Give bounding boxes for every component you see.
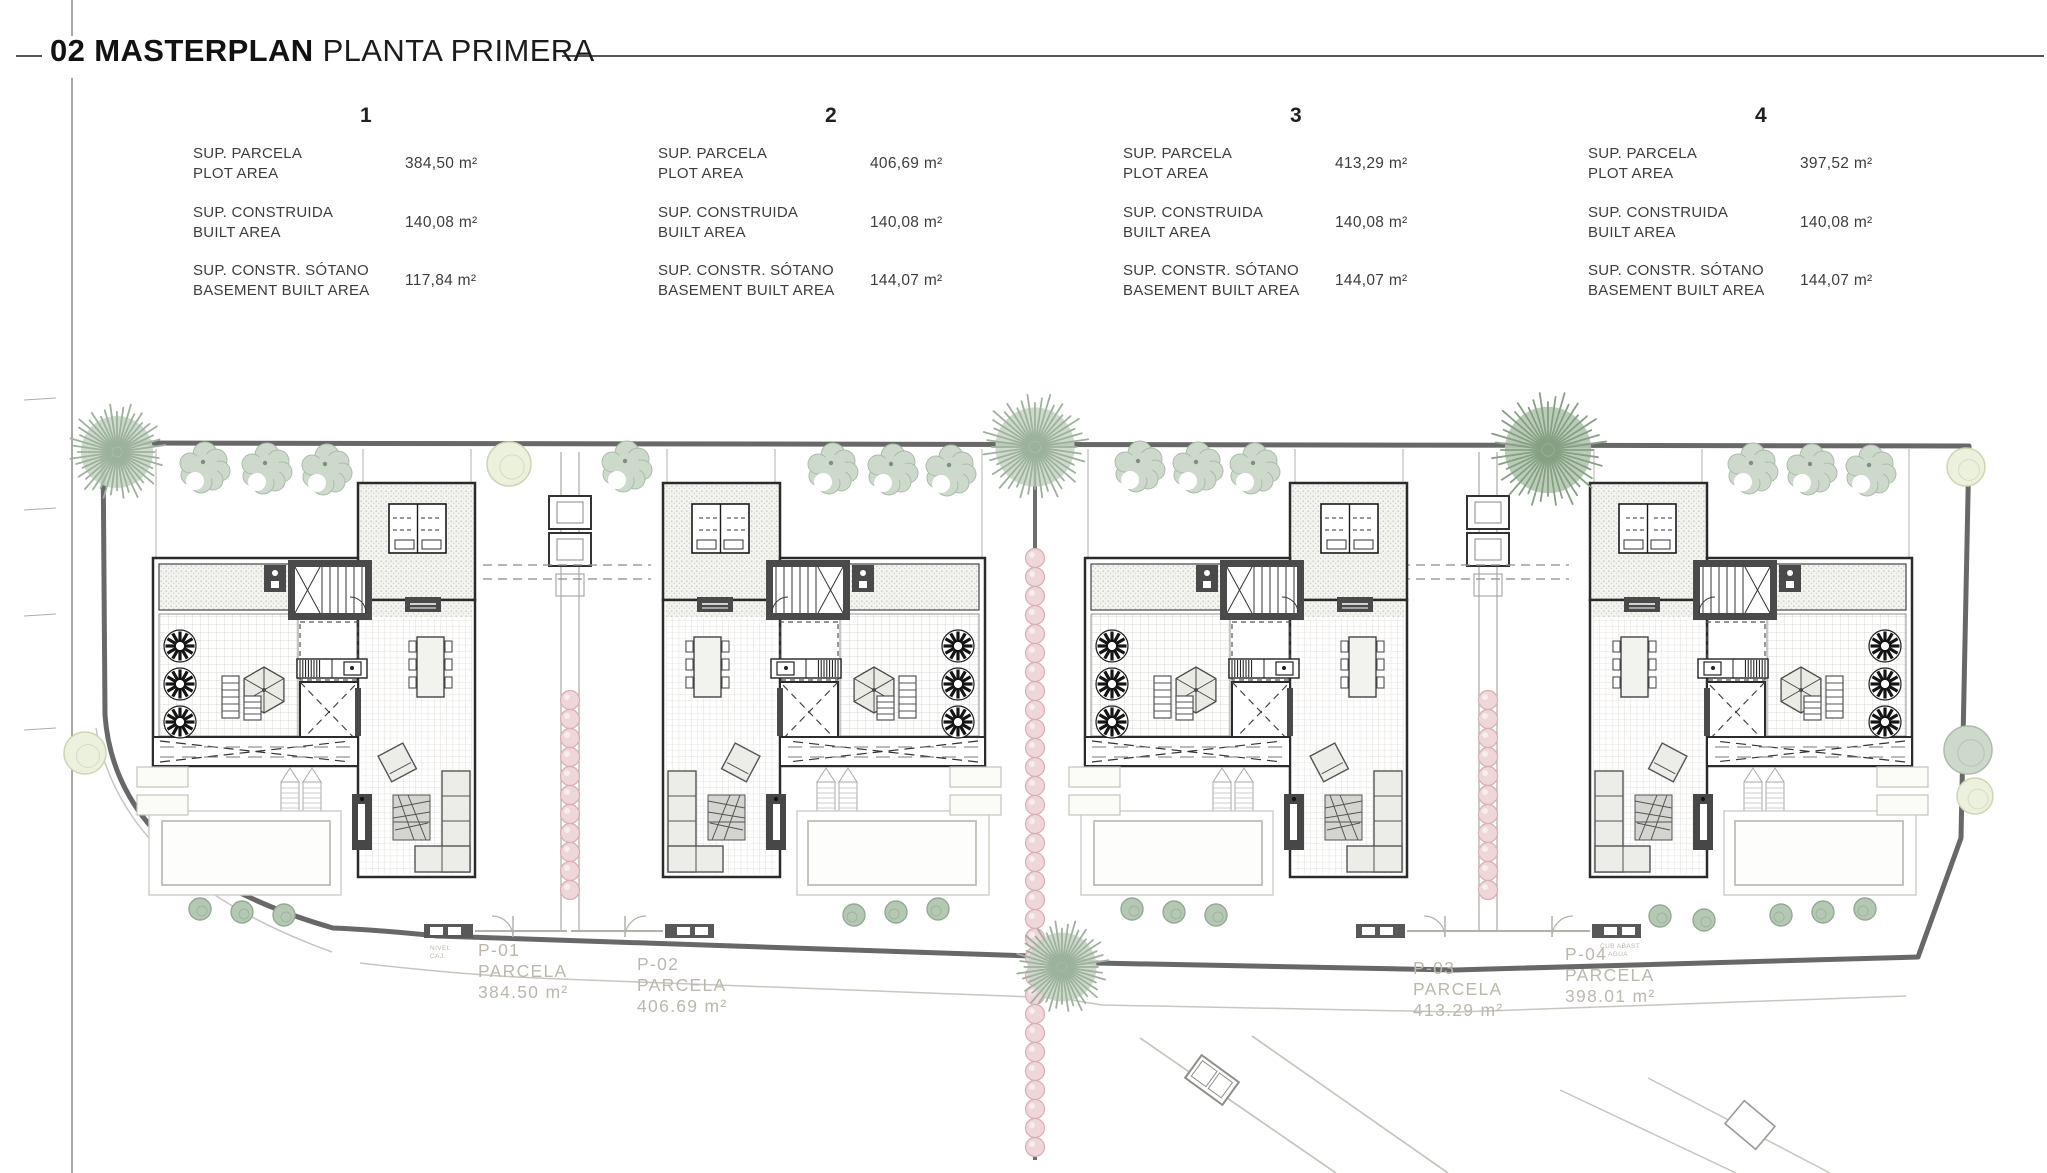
parcel-code: P-02 (637, 954, 679, 974)
unit-number: 4 (1755, 104, 1767, 128)
round-tree-icon (1957, 778, 1993, 814)
shrub-tree-icon (302, 444, 352, 495)
stat-label-en: BASEMENT BUILT AREA (658, 281, 870, 301)
stat-label-en: PLOT AREA (658, 164, 870, 184)
stat-label-es: SUP. CONSTR. SÓTANO (1588, 261, 1800, 281)
stat-label-es: SUP. CONSTR. SÓTANO (1123, 261, 1335, 281)
unit-stats-3: 3 SUP. PARCELAPLOT AREA 413,29 m² SUP. C… (1060, 100, 1525, 330)
unit-number: 2 (825, 104, 837, 128)
shrub-tree-icon (1787, 444, 1837, 495)
svg-text:CAJ.: CAJ. (430, 953, 446, 960)
stat-label-es: SUP. CONSTRUIDA (193, 203, 405, 223)
stat-label-en: BUILT AREA (1123, 223, 1335, 243)
masterplan-sheet: 02 MASTERPLAN PLANTA PRIMERA 1 SUP. PARC… (0, 0, 2047, 1173)
stat-label-es: SUP. CONSTRUIDA (1588, 203, 1800, 223)
parcel-word: PARCELA (1413, 979, 1503, 999)
house-plan-1 (137, 449, 567, 938)
parcel-area: 398.01 m² (1565, 986, 1656, 1006)
stat-row: SUP. CONSTR. SÓTANOBASEMENT BUILT AREA 1… (1123, 261, 1521, 300)
stat-value: 140,08 m² (1800, 214, 1873, 232)
parcel-area: 413.29 m² (1413, 1000, 1504, 1020)
shrub-tree-icon (242, 443, 292, 494)
parcel-word: PARCELA (637, 975, 727, 995)
stat-label-es: SUP. CONSTRUIDA (658, 203, 870, 223)
stat-row: SUP. CONSTR. SÓTANOBASEMENT BUILT AREA 1… (193, 261, 591, 300)
stat-value: 384,50 m² (405, 155, 478, 173)
shrub-tree-icon (1846, 445, 1896, 496)
stat-label-en: PLOT AREA (1123, 164, 1335, 184)
stat-label-en: BASEMENT BUILT AREA (1588, 281, 1800, 301)
stat-value: 117,84 m² (405, 272, 476, 290)
utility-tiny-label-left: NIVEL CAJ. (430, 945, 451, 960)
stat-label-es: SUP. PARCELA (193, 144, 405, 164)
large-tree-icon (70, 404, 165, 497)
stat-label-es: SUP. CONSTRUIDA (1123, 203, 1335, 223)
round-tree-icon (1944, 726, 1992, 774)
stat-value: 144,07 m² (1800, 272, 1873, 290)
stat-row: SUP. PARCELAPLOT AREA 406,69 m² (658, 144, 1056, 183)
svg-text:NIVEL: NIVEL (430, 945, 451, 952)
page-title-rest: PLANTA PRIMERA (323, 33, 595, 68)
stat-label-en: PLOT AREA (193, 164, 405, 184)
unit-stats-4: 4 SUP. PARCELAPLOT AREA 397,52 m² SUP. C… (1525, 100, 1990, 330)
parcel-area: 406.69 m² (637, 996, 728, 1016)
unit-number: 1 (360, 104, 372, 128)
stat-value: 144,07 m² (870, 272, 943, 290)
house-plan-4 (1498, 449, 1928, 938)
unit-stats-2: 2 SUP. PARCELAPLOT AREA 406,69 m² SUP. C… (595, 100, 1060, 330)
stat-value: 140,08 m² (405, 214, 478, 232)
stat-value: 140,08 m² (1335, 214, 1408, 232)
stat-value: 144,07 m² (1335, 272, 1408, 290)
stat-label-en: BUILT AREA (658, 223, 870, 243)
shrub-tree-icon (1115, 441, 1165, 492)
stat-row: SUP. CONSTRUIDABUILT AREA 140,08 m² (1588, 203, 1986, 242)
svg-text:AGUA: AGUA (1608, 951, 1628, 958)
shrub-tree-icon (1728, 443, 1778, 494)
stat-row: SUP. CONSTRUIDABUILT AREA 140,08 m² (1123, 203, 1521, 242)
shrub-tree-icon (808, 443, 858, 494)
unit-stats-1: 1 SUP. PARCELAPLOT AREA 384,50 m² SUP. C… (130, 100, 595, 330)
stat-row: SUP. CONSTRUIDABUILT AREA 140,08 m² (193, 203, 591, 242)
round-tree-icon (1947, 448, 1985, 486)
page-title: 02 MASTERPLAN PLANTA PRIMERA (50, 33, 595, 69)
parcel-word: PARCELA (1565, 965, 1655, 985)
round-tree-icon (64, 732, 106, 774)
parcel-code: P-01 (478, 940, 520, 960)
stat-value: 140,08 m² (870, 214, 943, 232)
shrub-tree-icon (926, 445, 976, 496)
shrub-tree-icon (1173, 442, 1223, 493)
stat-label-es: SUP. PARCELA (1588, 144, 1800, 164)
round-tree-icon (487, 442, 531, 486)
stat-row: SUP. PARCELAPLOT AREA 384,50 m² (193, 144, 591, 183)
stat-label-en: BASEMENT BUILT AREA (1123, 281, 1335, 301)
stat-row: SUP. CONSTR. SÓTANOBASEMENT BUILT AREA 1… (1588, 261, 1986, 300)
stat-value: 406,69 m² (870, 155, 943, 173)
shrub-tree-icon (1230, 443, 1280, 494)
stat-label-es: SUP. PARCELA (658, 144, 870, 164)
stat-label-es: SUP. PARCELA (1123, 144, 1335, 164)
stat-row: SUP. PARCELAPLOT AREA 413,29 m² (1123, 144, 1521, 183)
stat-label-es: SUP. CONSTR. SÓTANO (193, 261, 405, 281)
parcel-area: 384.50 m² (478, 982, 569, 1002)
shrub-tree-icon (180, 442, 230, 493)
unit-number: 3 (1290, 104, 1302, 128)
stat-row: SUP. CONSTR. SÓTANOBASEMENT BUILT AREA 1… (658, 261, 1056, 300)
shrub-tree-icon (868, 444, 918, 495)
house-plan-3 (1069, 449, 1499, 938)
stat-value: 413,29 m² (1335, 155, 1408, 173)
parcel-label-p02: P-02 PARCELA 406.69 m² (637, 954, 728, 1016)
stat-row: SUP. PARCELAPLOT AREA 397,52 m² (1588, 144, 1986, 183)
stat-value: 397,52 m² (1800, 155, 1873, 173)
stat-label-es: SUP. CONSTR. SÓTANO (658, 261, 870, 281)
stat-label-en: BUILT AREA (193, 223, 405, 243)
svg-text:CUB ABAST: CUB ABAST (1600, 943, 1640, 950)
shrub-tree-icon (602, 441, 652, 492)
large-tree-icon (984, 395, 1089, 498)
stat-label-en: PLOT AREA (1588, 164, 1800, 184)
stat-label-en: BASEMENT BUILT AREA (193, 281, 405, 301)
parcel-word: PARCELA (478, 961, 568, 981)
stat-label-en: BUILT AREA (1588, 223, 1800, 243)
house-plan-2 (571, 449, 1001, 938)
parcel-code: P-03 (1413, 958, 1455, 978)
parcel-label-p01: P-01 PARCELA 384.50 m² (478, 940, 569, 1002)
page-title-bold: 02 MASTERPLAN (50, 33, 314, 68)
stat-row: SUP. CONSTRUIDABUILT AREA 140,08 m² (658, 203, 1056, 242)
